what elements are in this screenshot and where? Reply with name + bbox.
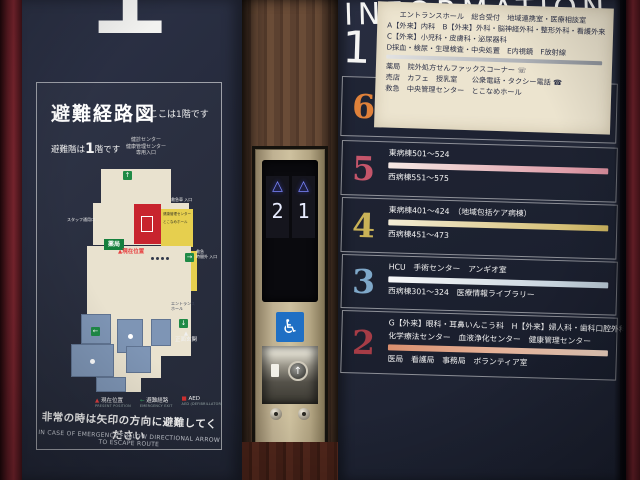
map-zone-yellow-hall: 健康管理センター とこなめホール xyxy=(161,209,193,247)
facility-icon-row xyxy=(151,257,169,260)
floor-digit: 1 xyxy=(292,196,315,226)
floor-number: 1 xyxy=(342,22,372,74)
elevator-call-button: ↑ xyxy=(288,361,308,381)
floor-map: 健康管理センター とこなめホール + 薬局 ▲現在位置 ↑ xyxy=(67,169,217,395)
current-floor-note: ここは1階です xyxy=(149,107,209,120)
evac-floor-number: 1 xyxy=(85,141,95,157)
keyhole xyxy=(298,408,310,420)
floor-line: 医局 看護局 事務局 ボランティア室 xyxy=(387,353,607,372)
floor-line: 西病棟451〜473 xyxy=(388,228,608,247)
floor-line: 西病棟551〜575 xyxy=(388,171,608,190)
wood-baseboard xyxy=(242,442,338,480)
floor-number: 5 xyxy=(352,148,376,188)
exit-arrow-down-icon: ↓ xyxy=(179,319,188,328)
floor-number: 2 xyxy=(352,322,376,362)
room-icon xyxy=(90,359,95,364)
elevator-lobby-photo: 1 避難経路図 ここは1階です 避難階は1階です 健診センター 健康管理センター… xyxy=(0,0,640,480)
map-room-blue xyxy=(71,344,114,377)
evacuation-title: 避難経路図 xyxy=(51,99,156,126)
elevator-display: △ 2 △ 1 xyxy=(262,160,318,302)
floor-row-1: 1 エントランスホール 総合受付 地域連携室・医療相談室 A【外来】内科 B【外… xyxy=(335,0,614,119)
floor-row-3: 3 HCU 手術センター アンギオ室 西病棟301〜324 医療情報ライブラリー xyxy=(340,254,617,316)
main-entrance-label: ▲ 正面玄関 xyxy=(175,331,197,343)
floor-line: 西病棟301〜324 医療情報ライブラリー xyxy=(388,285,608,304)
floor-digit: 2 xyxy=(266,196,289,226)
floor-number: 4 xyxy=(352,205,376,245)
room-icon xyxy=(128,334,133,339)
elevator-indicator-car2: △ 2 xyxy=(266,176,289,238)
floor-row-5: 5 東病棟501〜524 西病棟551〜575 xyxy=(340,140,617,203)
floor-row-2: 2 G【外来】眼科・耳鼻いんこう科 H【外来】婦人科・歯科口腔外科 化学療法セン… xyxy=(340,310,618,381)
er-entrance-label: 救急 時間外 入口 xyxy=(196,249,217,259)
legend-item-aed: ■ AED AED (DEFIBRILLATOR) xyxy=(182,396,223,408)
evac-prefix: 避難階は xyxy=(51,145,85,155)
legend-label-en: EMERGENCY EXIT xyxy=(140,404,173,408)
legend-item-position: ▲ 現在位置 PRESENT POSITION xyxy=(95,396,131,408)
exit-arrow-right-icon: → xyxy=(185,253,194,262)
elevator-indicator-car1: △ 1 xyxy=(292,176,315,238)
evacuation-floor-note: 避難階は1階です xyxy=(51,141,120,157)
up-arrow-icon: △ xyxy=(292,176,315,196)
map-room-blue xyxy=(96,377,126,392)
hall-label: とこなめホール xyxy=(161,217,193,225)
wheelchair-icon: ♿ xyxy=(281,316,298,338)
note-line: 専用入口 xyxy=(111,150,181,157)
legend-label-en: AED (DEFIBRILLATOR) xyxy=(182,402,223,406)
left-wall xyxy=(0,0,22,480)
map-room-blue xyxy=(126,346,151,373)
evacuation-sign-panel: 1 避難経路図 ここは1階です 避難階は1階です 健診センター 健康管理センター… xyxy=(22,0,242,480)
information-panel: INFORMATION 6 東病棟601〜614 （回復期リハビリテーション病棟… xyxy=(338,0,620,480)
button-label-card xyxy=(271,364,279,377)
call-button-niche: ↑ xyxy=(262,346,318,404)
entrance-hall-label: エントランス ホール xyxy=(171,301,195,311)
map-zone-red xyxy=(134,204,161,244)
right-wall xyxy=(626,0,640,480)
evacuation-frame: 避難経路図 ここは1階です 避難階は1階です 健診センター 健康管理センター 専… xyxy=(36,82,222,450)
er-line: 時間外 入口 xyxy=(196,254,217,259)
keyhole xyxy=(270,408,282,420)
floor-row-4: 4 東病棟401〜424 （地域包括ケア病棟） 西病棟451〜473 xyxy=(340,197,617,260)
ambulance-entrance-label: 救急車 入口 xyxy=(171,197,192,202)
staff-entrance-label: スタッフ通用口 xyxy=(67,217,95,222)
legend-item-escape: ← 避難経路 EMERGENCY EXIT xyxy=(140,396,173,408)
up-arrow-icon: △ xyxy=(266,176,289,196)
present-position-marker: ▲現在位置 xyxy=(118,247,144,255)
hall-line: ホール xyxy=(171,306,195,311)
floor-number: 3 xyxy=(352,262,376,302)
map-room-outline xyxy=(141,216,153,232)
main-entrance-text: 正面玄関 xyxy=(175,337,197,343)
map-legend: ▲ 現在位置 PRESENT POSITION ← 避難経路 EMERGENCY… xyxy=(95,396,223,408)
floor-number-sign: 1 xyxy=(80,0,175,71)
wheelchair-sign: ♿ xyxy=(276,312,304,342)
map-entrance-note: 健診センター 健康管理センター 専用入口 xyxy=(111,137,181,157)
exit-arrow-left-icon: ← xyxy=(91,327,100,336)
legend-label-en: PRESENT POSITION xyxy=(95,404,131,408)
map-zone-top-wing xyxy=(101,169,171,203)
map-room-blue xyxy=(151,319,171,346)
floor1-panel: エントランスホール 総合受付 地域連携室・医療相談室 A【外来】内科 B【外来】… xyxy=(374,1,614,134)
health-center-label: 健康管理センター xyxy=(161,209,193,217)
exit-arrow-up-icon: ↑ xyxy=(123,171,132,180)
